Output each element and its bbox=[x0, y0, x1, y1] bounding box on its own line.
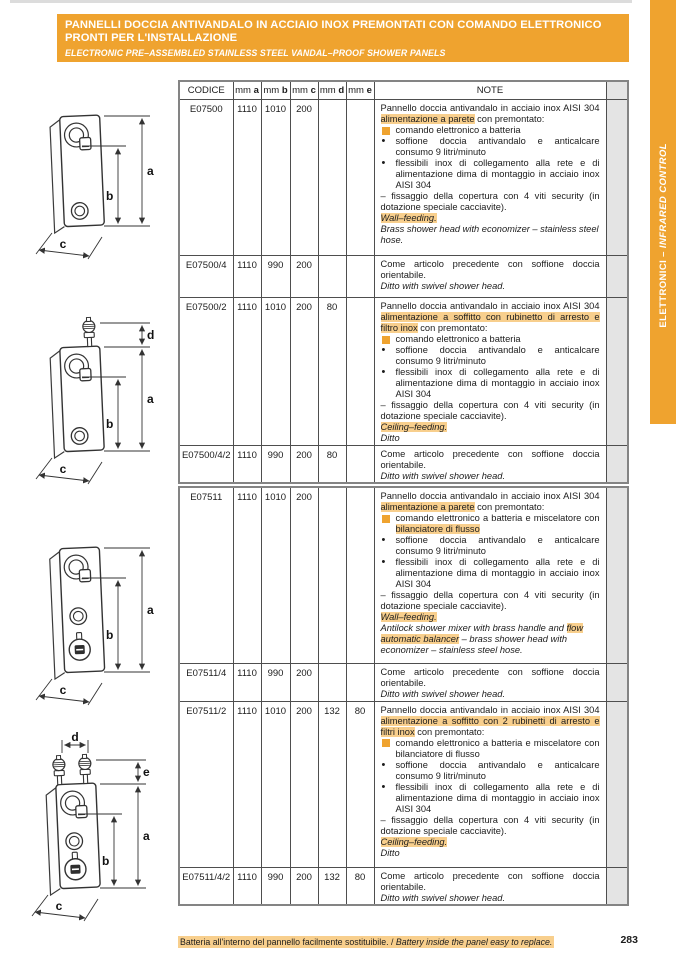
note-line: •soffione doccia antivandalo e anticalca… bbox=[381, 535, 600, 557]
note-text: alimentazione a soffitto con rubinetto d… bbox=[381, 312, 600, 333]
mm-a-cell: 1110 bbox=[233, 701, 261, 867]
note-line: Pannello doccia antivandalo in acciaio i… bbox=[381, 705, 600, 738]
note-text: Ditto with swivel shower head. bbox=[381, 471, 506, 481]
page-top-edge bbox=[10, 0, 632, 3]
dot-bullet: • bbox=[382, 136, 386, 147]
mm-c-cell: 200 bbox=[290, 487, 318, 663]
note-line: Ditto bbox=[381, 433, 600, 444]
column-header bbox=[606, 81, 628, 100]
note-text: Ceiling–feeding. bbox=[381, 422, 448, 432]
note-line: Come articolo precedente con soffione do… bbox=[381, 449, 600, 471]
column-header: mm a bbox=[233, 81, 261, 100]
section-tab-text: ELETTRONICI – bbox=[658, 248, 669, 328]
technical-drawing-2: abcd bbox=[18, 297, 168, 500]
note-line: Ditto bbox=[381, 848, 600, 859]
note-line: – fissaggio della copertura con 4 viti s… bbox=[381, 191, 600, 213]
svg-text:a: a bbox=[147, 164, 154, 178]
note-line: Pannello doccia antivandalo in acciaio i… bbox=[381, 103, 600, 125]
note-text: flessibili inox di collegamento alla ret… bbox=[396, 367, 600, 399]
note-line: •flessibili inox di collegamento alla re… bbox=[381, 158, 600, 191]
filler-cell bbox=[606, 298, 628, 446]
table-row: E07500/41110990200Come articolo preceden… bbox=[179, 256, 628, 298]
column-header: mm d bbox=[318, 81, 346, 100]
mm-a-cell: 1110 bbox=[233, 446, 261, 484]
svg-text:c: c bbox=[60, 237, 67, 251]
svg-text:d: d bbox=[71, 730, 78, 744]
technical-drawing-3: abc bbox=[18, 532, 168, 721]
note-line: Ceiling–feeding. bbox=[381, 422, 600, 433]
codice-cell: E07511/4 bbox=[179, 663, 233, 701]
mm-c-cell: 200 bbox=[290, 100, 318, 256]
note-text: Come articolo precedente con soffione do… bbox=[381, 667, 600, 688]
note-text: Brass shower head with economizer – stai… bbox=[381, 224, 599, 245]
mm-c-cell: 200 bbox=[290, 446, 318, 484]
note-line: Come articolo precedente con soffione do… bbox=[381, 667, 600, 689]
mm-b-cell: 990 bbox=[261, 867, 290, 905]
mm-c-cell: 200 bbox=[290, 701, 318, 867]
mm-e-cell bbox=[346, 100, 374, 256]
note-text: Wall–feeding. bbox=[381, 213, 437, 223]
note-text: – fissaggio della copertura con 4 viti s… bbox=[381, 191, 600, 212]
note-text: flessibili inox di collegamento alla ret… bbox=[396, 557, 600, 589]
codice-cell: E07511/4/2 bbox=[179, 867, 233, 905]
note-text: Ditto with swivel shower head. bbox=[381, 689, 506, 699]
page-number: 283 bbox=[580, 934, 638, 946]
note-text: con premontato: bbox=[415, 727, 485, 737]
note-line: Ditto with swivel shower head. bbox=[381, 893, 600, 904]
spec-table: E0751111101010200Pannello doccia antivan… bbox=[178, 486, 629, 906]
note-cell: Pannello doccia antivandalo in acciaio i… bbox=[374, 298, 606, 446]
note-text: Ditto with swivel shower head. bbox=[381, 893, 506, 903]
mm-e-cell: 80 bbox=[346, 867, 374, 905]
note-line: Brass shower head with economizer – stai… bbox=[381, 224, 600, 246]
mm-a-cell: 1110 bbox=[233, 487, 261, 663]
note-line: Ditto with swivel shower head. bbox=[381, 689, 600, 700]
mm-d-cell: 132 bbox=[318, 867, 346, 905]
note-text: comando elettronico a batteria bbox=[396, 334, 521, 344]
note-line: Ditto with swivel shower head. bbox=[381, 471, 600, 482]
note-cell: Pannello doccia antivandalo in acciaio i… bbox=[374, 701, 606, 867]
note-line: Pannello doccia antivandalo in acciaio i… bbox=[381, 301, 600, 334]
section-tab: ELETTRONICI – INFRARED CONTROL bbox=[650, 0, 676, 424]
table-row: E07500/21110101020080Pannello doccia ant… bbox=[179, 298, 628, 446]
panel-drawing-svg: abc bbox=[18, 532, 168, 716]
note-line: – fissaggio della copertura con 4 viti s… bbox=[381, 400, 600, 422]
note-text: con premontato: bbox=[475, 502, 545, 512]
note-text: Come articolo precedente con soffione do… bbox=[381, 259, 600, 280]
mm-b-cell: 990 bbox=[261, 663, 290, 701]
svg-text:a: a bbox=[147, 392, 154, 406]
note-text: flessibili inox di collegamento alla ret… bbox=[396, 158, 600, 190]
note-text: flessibili inox di collegamento alla ret… bbox=[396, 782, 600, 814]
dot-bullet: • bbox=[382, 158, 386, 169]
column-header: NOTE bbox=[374, 81, 606, 100]
orange-square-bullet bbox=[382, 739, 390, 747]
note-text: comando elettronico a batteria e miscela… bbox=[396, 738, 600, 759]
column-header: mm e bbox=[346, 81, 374, 100]
mm-b-cell: 1010 bbox=[261, 487, 290, 663]
note-text: Ditto bbox=[381, 848, 400, 858]
table-row: E0750011101010200Pannello doccia antivan… bbox=[179, 100, 628, 256]
panel-drawing-svg: abc bbox=[18, 100, 168, 270]
note-text: comando elettronico a batteria bbox=[396, 125, 521, 135]
mm-e-cell bbox=[346, 298, 374, 446]
note-text: alimentazione a parete bbox=[381, 502, 475, 512]
header-banner: PANNELLI DOCCIA ANTIVANDALO IN ACCIAIO I… bbox=[57, 14, 629, 62]
note-line: •flessibili inox di collegamento alla re… bbox=[381, 367, 600, 400]
mm-e-cell: 80 bbox=[346, 701, 374, 867]
filler-cell bbox=[606, 100, 628, 256]
note-line: •flessibili inox di collegamento alla re… bbox=[381, 782, 600, 815]
note-text: Pannello doccia antivandalo in acciaio i… bbox=[381, 705, 600, 715]
note-cell: Come articolo precedente con soffione do… bbox=[374, 663, 606, 701]
table-header-row: CODICEmm amm bmm cmm dmm eNOTE bbox=[179, 81, 628, 100]
column-header: mm c bbox=[290, 81, 318, 100]
note-text: Wall–feeding. bbox=[381, 612, 437, 622]
catalog-page: PANNELLI DOCCIA ANTIVANDALO IN ACCIAIO I… bbox=[0, 0, 677, 958]
codice-cell: E07511/2 bbox=[179, 701, 233, 867]
footer-note-text: Batteria all'interno del pannello facilm… bbox=[178, 936, 554, 948]
column-header: mm b bbox=[261, 81, 290, 100]
mm-a-cell: 1110 bbox=[233, 100, 261, 256]
note-text: con premontato: bbox=[418, 323, 488, 333]
table-row: E07511/21110101020013280Pannello doccia … bbox=[179, 701, 628, 867]
dot-bullet: • bbox=[382, 345, 386, 356]
svg-text:c: c bbox=[60, 462, 67, 476]
mm-e-cell bbox=[346, 446, 374, 484]
filler-cell bbox=[606, 256, 628, 298]
mm-c-cell: 200 bbox=[290, 867, 318, 905]
note-line: Wall–feeding. bbox=[381, 612, 600, 623]
table-row: E07511/41110990200Come articolo preceden… bbox=[179, 663, 628, 701]
note-text: soffione doccia antivandalo e anticalcar… bbox=[396, 535, 600, 556]
filler-cell bbox=[606, 663, 628, 701]
note-text: Antilock shower mixer with brass handle … bbox=[381, 623, 567, 633]
note-text: soffione doccia antivandalo e anticalcar… bbox=[396, 345, 600, 366]
note-line: Pannello doccia antivandalo in acciaio i… bbox=[381, 491, 600, 513]
svg-text:a: a bbox=[143, 829, 150, 843]
note-line: Ditto with swivel shower head. bbox=[381, 281, 600, 292]
mm-c-cell: 200 bbox=[290, 256, 318, 298]
svg-text:c: c bbox=[56, 899, 63, 913]
svg-text:c: c bbox=[60, 683, 67, 697]
mm-a-cell: 1110 bbox=[233, 256, 261, 298]
codice-cell: E07500/4 bbox=[179, 256, 233, 298]
note-text: soffione doccia antivandalo e anticalcar… bbox=[396, 760, 600, 781]
section-tab-text-italic: INFRARED CONTROL bbox=[658, 143, 669, 248]
table-row: E07500/4/2111099020080Come articolo prec… bbox=[179, 446, 628, 484]
note-line: Come articolo precedente con soffione do… bbox=[381, 871, 600, 893]
note-text: Ceiling–feeding. bbox=[381, 837, 448, 847]
page-title-line2: PRONTI PER L'INSTALLAZIONE bbox=[65, 32, 629, 45]
page-subtitle: ELECTRONIC PRE–ASSEMBLED STAINLESS STEEL… bbox=[65, 48, 629, 58]
codice-cell: E07511 bbox=[179, 487, 233, 663]
note-line: •soffione doccia antivandalo e anticalca… bbox=[381, 136, 600, 158]
note-cell: Come articolo precedente con soffione do… bbox=[374, 256, 606, 298]
orange-square-bullet bbox=[382, 127, 390, 135]
mm-c-cell: 200 bbox=[290, 663, 318, 701]
mm-c-cell: 200 bbox=[290, 298, 318, 446]
mm-e-cell bbox=[346, 487, 374, 663]
note-text: Ditto bbox=[381, 433, 400, 443]
dot-bullet: • bbox=[382, 535, 386, 546]
note-line: comando elettronico a batteria e miscela… bbox=[381, 738, 600, 760]
note-line: – fissaggio della copertura con 4 viti s… bbox=[381, 590, 600, 612]
dot-bullet: • bbox=[382, 557, 386, 568]
filler-cell bbox=[606, 867, 628, 905]
mm-e-cell bbox=[346, 256, 374, 298]
footer-note: Batteria all'interno del pannello facilm… bbox=[178, 936, 554, 948]
note-text: bilanciatore di flusso bbox=[396, 524, 480, 534]
mm-d-cell: 80 bbox=[318, 298, 346, 446]
svg-text:a: a bbox=[147, 603, 154, 617]
note-cell: Come articolo precedente con soffione do… bbox=[374, 446, 606, 484]
note-cell: Come articolo precedente con soffione do… bbox=[374, 867, 606, 905]
mm-a-cell: 1110 bbox=[233, 663, 261, 701]
mm-a-cell: 1110 bbox=[233, 867, 261, 905]
mm-d-cell bbox=[318, 663, 346, 701]
panel-drawing-svg: abcde bbox=[14, 720, 169, 932]
orange-square-bullet bbox=[382, 336, 390, 344]
dot-bullet: • bbox=[382, 760, 386, 771]
dot-bullet: • bbox=[382, 782, 386, 793]
technical-drawing-4: abcde bbox=[14, 720, 169, 937]
mm-b-cell: 1010 bbox=[261, 100, 290, 256]
dot-bullet: • bbox=[382, 367, 386, 378]
codice-cell: E07500 bbox=[179, 100, 233, 256]
filler-cell bbox=[606, 446, 628, 484]
filler-cell bbox=[606, 487, 628, 663]
mm-d-cell: 132 bbox=[318, 701, 346, 867]
note-line: •soffione doccia antivandalo e anticalca… bbox=[381, 760, 600, 782]
note-text: – fissaggio della copertura con 4 viti s… bbox=[381, 815, 600, 836]
note-text: Pannello doccia antivandalo in acciaio i… bbox=[381, 301, 600, 311]
note-text: Pannello doccia antivandalo in acciaio i… bbox=[381, 491, 600, 501]
footer-note-italian: Batteria all'interno del pannello facilm… bbox=[180, 937, 396, 947]
mm-d-cell: 80 bbox=[318, 446, 346, 484]
mm-b-cell: 1010 bbox=[261, 701, 290, 867]
svg-text:b: b bbox=[106, 628, 113, 642]
spec-table-1: CODICEmm amm bmm cmm dmm eNOTEE075001110… bbox=[178, 80, 629, 484]
note-line: •soffione doccia antivandalo e anticalca… bbox=[381, 345, 600, 367]
note-line: Come articolo precedente con soffione do… bbox=[381, 259, 600, 281]
spec-table-2: E0751111101010200Pannello doccia antivan… bbox=[178, 486, 629, 906]
codice-cell: E07500/4/2 bbox=[179, 446, 233, 484]
footer-note-english: Battery inside the panel easy to replace… bbox=[396, 937, 552, 947]
note-text: con premontato: bbox=[475, 114, 545, 124]
mm-a-cell: 1110 bbox=[233, 298, 261, 446]
note-text: – fissaggio della copertura con 4 viti s… bbox=[381, 590, 600, 611]
mm-d-cell bbox=[318, 487, 346, 663]
spec-table: CODICEmm amm bmm cmm dmm eNOTEE075001110… bbox=[178, 80, 629, 484]
note-line: Ceiling–feeding. bbox=[381, 837, 600, 848]
svg-text:d: d bbox=[147, 328, 154, 342]
note-text: Come articolo precedente con soffione do… bbox=[381, 871, 600, 892]
note-text: Ditto with swivel shower head. bbox=[381, 281, 506, 291]
note-line: comando elettronico a batteria e miscela… bbox=[381, 513, 600, 535]
note-text: soffione doccia antivandalo e anticalcar… bbox=[396, 136, 600, 157]
column-header: CODICE bbox=[179, 81, 233, 100]
svg-text:b: b bbox=[106, 417, 113, 431]
mm-d-cell bbox=[318, 256, 346, 298]
note-text: alimentazione a parete bbox=[381, 114, 475, 124]
mm-e-cell bbox=[346, 663, 374, 701]
note-text: Come articolo precedente con soffione do… bbox=[381, 449, 600, 470]
filler-cell bbox=[606, 701, 628, 867]
table-row: E07511/4/2111099020013280Come articolo p… bbox=[179, 867, 628, 905]
note-line: •flessibili inox di collegamento alla re… bbox=[381, 557, 600, 590]
svg-text:e: e bbox=[143, 765, 150, 779]
mm-b-cell: 1010 bbox=[261, 298, 290, 446]
note-text: comando elettronico a batteria e miscela… bbox=[396, 513, 600, 523]
panel-drawing-svg: abcd bbox=[18, 297, 168, 495]
svg-text:b: b bbox=[106, 189, 113, 203]
section-tab-label: ELETTRONICI – INFRARED CONTROL bbox=[658, 143, 669, 328]
note-cell: Pannello doccia antivandalo in acciaio i… bbox=[374, 100, 606, 256]
note-text: Pannello doccia antivandalo in acciaio i… bbox=[381, 103, 600, 113]
technical-drawing-1: abc bbox=[18, 100, 168, 275]
note-cell: Pannello doccia antivandalo in acciaio i… bbox=[374, 487, 606, 663]
note-line: Wall–feeding. bbox=[381, 213, 600, 224]
note-text: – fissaggio della copertura con 4 viti s… bbox=[381, 400, 600, 421]
orange-square-bullet bbox=[382, 515, 390, 523]
svg-text:b: b bbox=[102, 854, 109, 868]
note-line: Antilock shower mixer with brass handle … bbox=[381, 623, 600, 656]
note-line: comando elettronico a batteria bbox=[381, 334, 600, 345]
note-line: – fissaggio della copertura con 4 viti s… bbox=[381, 815, 600, 837]
page-title-line1: PANNELLI DOCCIA ANTIVANDALO IN ACCIAIO I… bbox=[65, 19, 629, 32]
note-line: comando elettronico a batteria bbox=[381, 125, 600, 136]
mm-d-cell bbox=[318, 100, 346, 256]
mm-b-cell: 990 bbox=[261, 256, 290, 298]
table-row: E0751111101010200Pannello doccia antivan… bbox=[179, 487, 628, 663]
mm-b-cell: 990 bbox=[261, 446, 290, 484]
note-text: alimentazione a soffitto con 2 rubinetti… bbox=[381, 716, 600, 737]
codice-cell: E07500/2 bbox=[179, 298, 233, 446]
